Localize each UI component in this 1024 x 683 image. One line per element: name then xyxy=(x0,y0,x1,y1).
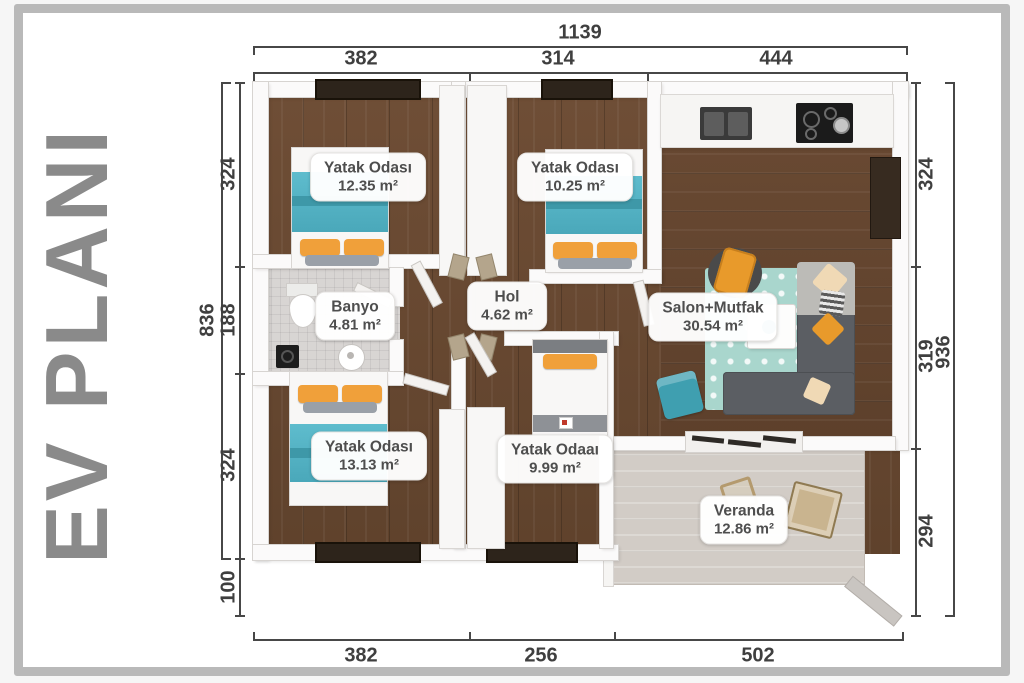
dim-label-right-total: 936 xyxy=(933,335,956,368)
bed-pillow xyxy=(597,242,637,259)
wardrobe xyxy=(440,86,464,275)
bed-tag-dot xyxy=(562,420,567,425)
dim-tick xyxy=(911,615,921,617)
sink-bowl xyxy=(704,112,724,136)
dim-tick xyxy=(235,82,245,84)
wall-left xyxy=(253,82,268,560)
room-label-bedroom2: Yatak Odası 10.25 m² xyxy=(517,153,633,202)
room-name: Yatak Odası xyxy=(325,438,413,457)
dim-label: 502 xyxy=(741,645,774,668)
dim-label: 314 xyxy=(541,48,574,71)
room-label-bedroom1: Yatak Odası 12.35 m² xyxy=(310,153,426,202)
dim-label: 382 xyxy=(344,645,377,668)
wardrobe xyxy=(468,86,506,275)
burner-icon xyxy=(805,128,817,140)
dim-tick xyxy=(235,558,245,560)
bed-pillow xyxy=(305,255,379,266)
dim-tick xyxy=(945,615,955,617)
dim-label: 188 xyxy=(218,303,241,336)
dim-tick xyxy=(945,82,955,84)
room-label-veranda: Veranda 12.86 m² xyxy=(700,496,788,545)
bed-pillow xyxy=(558,258,632,269)
room-area: 10.25 m² xyxy=(531,178,619,196)
dim-tick xyxy=(253,632,255,641)
bed-pillow xyxy=(553,242,593,259)
dim-tick xyxy=(235,373,245,375)
dim-tick xyxy=(906,72,908,81)
washing-machine-door xyxy=(281,350,294,363)
bed-headboard xyxy=(533,340,607,353)
room-area: 13.13 m² xyxy=(325,457,413,475)
room-name: Salon+Mutfak xyxy=(662,299,763,318)
room-area: 4.62 m² xyxy=(481,307,533,325)
dim-line xyxy=(253,639,904,641)
window-bedroom2 xyxy=(541,79,613,100)
room-area: 4.81 m² xyxy=(329,317,381,335)
burner-icon xyxy=(803,111,820,128)
sink-bowl xyxy=(728,112,748,136)
room-area: 9.99 m² xyxy=(511,460,599,478)
dim-label-top-total: 1139 xyxy=(558,22,601,45)
bed-pillow xyxy=(298,385,338,403)
dim-tick xyxy=(235,266,245,268)
dim-label: 324 xyxy=(218,448,241,481)
room-area: 30.54 m² xyxy=(662,318,763,336)
room-label-bedroom3: Yatak Odası 13.13 m² xyxy=(311,432,427,481)
wall-bedroom2-west xyxy=(648,82,661,283)
bed-pillow xyxy=(300,239,340,256)
dim-tick xyxy=(253,72,255,81)
room-name: Hol xyxy=(481,288,533,307)
cushion xyxy=(818,289,845,316)
dim-tick xyxy=(906,46,908,55)
dim-line xyxy=(253,72,908,74)
dim-tick xyxy=(235,615,245,617)
dim-label: 444 xyxy=(759,48,792,71)
room-name: Yatak Odaaı xyxy=(511,441,599,460)
window-bedroom1 xyxy=(315,79,421,100)
room-name: Yatak Odası xyxy=(531,159,619,178)
window-bedroom3 xyxy=(315,542,421,563)
bed-pillow xyxy=(344,239,384,256)
room-label-salon: Salon+Mutfak 30.54 m² xyxy=(648,293,777,342)
dim-tick xyxy=(911,82,921,84)
bed-pillow xyxy=(543,354,597,369)
sofa-bottom xyxy=(723,372,855,415)
entry-door xyxy=(871,158,900,238)
bed-pillow xyxy=(303,402,377,413)
dim-tick xyxy=(911,266,921,268)
dim-tick xyxy=(911,448,921,450)
room-name: Veranda xyxy=(714,502,774,521)
bed-pillow xyxy=(342,385,382,403)
room-name: Yatak Odası xyxy=(324,159,412,178)
dim-tick xyxy=(902,632,904,641)
dim-label: 294 xyxy=(916,514,939,547)
wall-right xyxy=(893,82,908,450)
dim-label: 382 xyxy=(344,48,377,71)
dim-tick xyxy=(253,46,255,55)
room-name: Banyo xyxy=(329,298,381,317)
dim-tick xyxy=(469,632,471,641)
dim-label: 324 xyxy=(218,157,241,190)
wardrobe xyxy=(440,410,464,548)
dim-tick xyxy=(469,72,471,81)
dim-tick xyxy=(614,632,616,641)
room-area: 12.35 m² xyxy=(324,178,412,196)
room-area: 12.86 m² xyxy=(714,521,774,539)
page-title: EV PLANI xyxy=(17,65,137,625)
room-label-bedroom4: Yatak Odaaı 9.99 m² xyxy=(497,435,613,484)
kitchen-counter xyxy=(661,95,893,147)
sink-drain xyxy=(347,352,354,359)
dim-label: 256 xyxy=(524,645,557,668)
dim-tick xyxy=(221,82,231,84)
dim-tick xyxy=(221,558,231,560)
dim-label: 100 xyxy=(218,570,241,603)
pot-icon xyxy=(833,117,850,134)
dim-tick xyxy=(647,72,649,81)
dim-label-left-total: 836 xyxy=(197,303,220,336)
room-label-banyo: Banyo 4.81 m² xyxy=(315,292,395,341)
room-label-hol: Hol 4.62 m² xyxy=(467,282,547,331)
dim-label: 324 xyxy=(916,157,939,190)
